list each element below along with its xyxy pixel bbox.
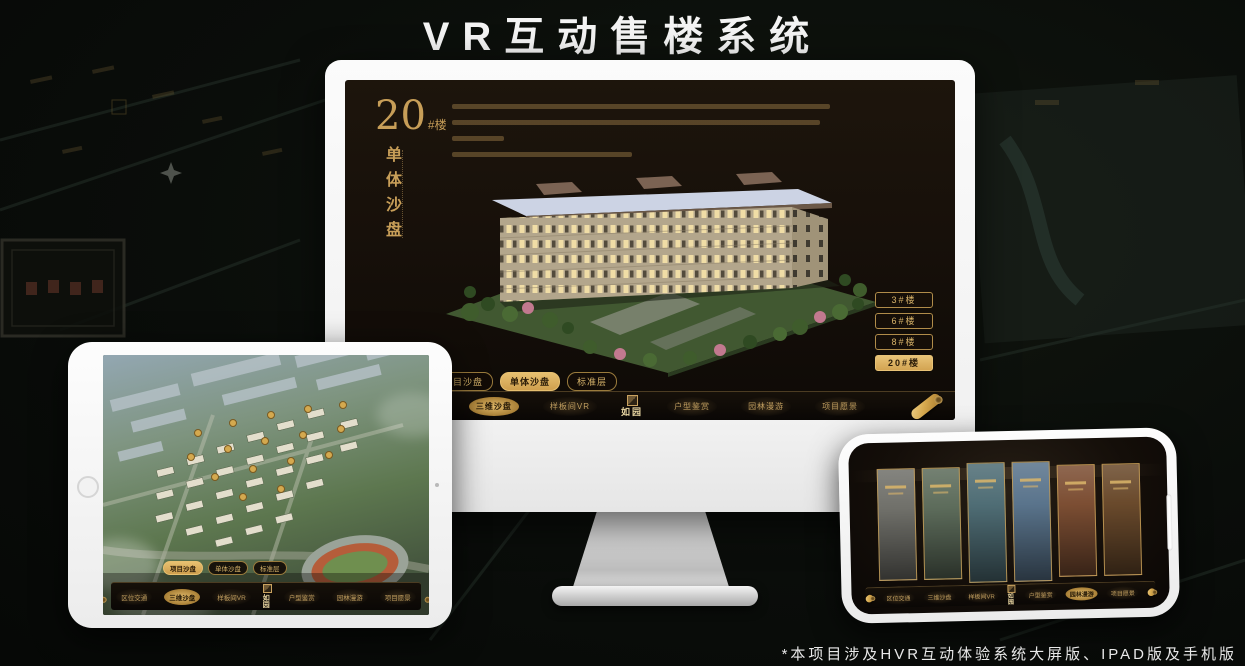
nav-item-sandbox-3d[interactable]: 三维沙盘 (164, 589, 200, 605)
scene-card-6[interactable] (1101, 463, 1142, 576)
scroll-icon[interactable] (864, 593, 874, 603)
seal-icon (263, 584, 272, 593)
bg-plaque (2, 240, 124, 336)
nav-item-model-room-vr[interactable]: 样板间VR (543, 397, 597, 416)
tablet-bottom-nav: 区位交通 三维沙盘 样板间VR 如园 户型鉴赏 园林漫游 项目愿景 (111, 582, 421, 610)
description-line (452, 120, 820, 125)
camera-icon (435, 483, 439, 487)
phone-device: 区位交通 三维沙盘 样板间VR 如园 户型鉴赏 园林漫游 项目愿景 (838, 427, 1180, 624)
description-line (452, 136, 504, 141)
brand-logo-text: 如园 (621, 408, 643, 417)
nav-item-garden-tour[interactable]: 园林漫游 (332, 589, 368, 605)
bg-compass-star-icon (160, 162, 182, 184)
tab-standard-floor[interactable]: 标准层 (567, 372, 617, 391)
block-subtitle: 单体沙盘 (379, 146, 403, 246)
building-button-6[interactable]: 6#楼 (875, 313, 933, 329)
page-title: VR互动售楼系统 (0, 4, 1245, 62)
scene-card-4[interactable] (1011, 461, 1052, 582)
scroll-icon[interactable] (1146, 587, 1156, 597)
nav-item-vision[interactable]: 项目愿景 (815, 397, 865, 416)
seal-icon (1007, 584, 1015, 592)
tablet-sandbox-tabs: 项目沙盘 单体沙盘 标准层 (163, 561, 287, 575)
tab-project-sandbox[interactable]: 项目沙盘 (163, 561, 203, 575)
brand-logo: 如园 (621, 395, 643, 417)
seal-icon (627, 395, 638, 406)
description-line (452, 104, 830, 109)
scroll-icon[interactable] (909, 392, 943, 420)
nav-item-location[interactable]: 区位交通 (116, 589, 152, 605)
description-line (452, 152, 632, 157)
nav-item-floorplans[interactable]: 户型鉴赏 (1025, 587, 1057, 601)
brand-logo-text: 如园 (263, 595, 272, 609)
tab-single-sandbox[interactable]: 单体沙盘 (500, 372, 560, 391)
nav-item-location[interactable]: 区位交通 (882, 591, 914, 605)
nav-item-sandbox-3d[interactable]: 三维沙盘 (923, 590, 955, 604)
subtitle-ornament (402, 150, 403, 238)
phone-speaker-slot (1166, 494, 1172, 550)
block-number: 20 (375, 93, 426, 139)
nav-item-garden-tour[interactable]: 园林漫游 (1066, 587, 1098, 601)
tab-standard-floor[interactable]: 标准层 (253, 561, 287, 575)
scene-card-3[interactable] (966, 462, 1007, 583)
building-selector: 3#楼 6#楼 8#楼 20#楼 (875, 292, 933, 371)
block-unit: #楼 (428, 118, 447, 132)
description-paragraph (452, 104, 830, 168)
tablet-screen: 项目沙盘 单体沙盘 标准层 区位交通 三维沙盘 样板间VR 如园 户型鉴赏 园林… (103, 355, 429, 615)
phone-bottom-nav: 区位交通 三维沙盘 样板间VR 如园 户型鉴赏 园林漫游 项目愿景 (865, 581, 1155, 609)
nav-item-sandbox-3d[interactable]: 三维沙盘 (469, 397, 519, 416)
scene-card-gallery (849, 462, 1170, 585)
nav-item-floorplans[interactable]: 户型鉴赏 (284, 589, 320, 605)
tablet-device: 项目沙盘 单体沙盘 标准层 区位交通 三维沙盘 样板间VR 如园 户型鉴赏 园林… (68, 342, 452, 628)
building-3d-model[interactable] (440, 162, 885, 377)
building-button-8[interactable]: 8#楼 (875, 334, 933, 350)
footnote: *本项目涉及HVR互动体验系统大屏版、IPAD版及手机版 (782, 643, 1237, 664)
scene-card-2[interactable] (921, 467, 962, 580)
tab-single-sandbox[interactable]: 单体沙盘 (208, 561, 248, 575)
sandbox-tabs: 项目沙盘 单体沙盘 标准层 (433, 372, 617, 391)
nav-item-vision[interactable]: 项目愿景 (380, 589, 416, 605)
scene-card-1[interactable] (876, 468, 917, 581)
nav-item-model-room-vr[interactable]: 样板间VR (212, 589, 251, 605)
brand-logo: 如园 (263, 584, 272, 609)
brand-logo: 如园 (1007, 584, 1015, 605)
nav-item-floorplans[interactable]: 户型鉴赏 (667, 397, 717, 416)
block-title: 20#楼 (375, 96, 447, 136)
building-button-20[interactable]: 20#楼 (875, 355, 933, 371)
nav-item-garden-tour[interactable]: 园林漫游 (741, 397, 791, 416)
brand-logo-text: 如园 (1008, 593, 1016, 605)
monitor-stand (572, 510, 730, 590)
page: VR互动售楼系统 20#楼 单体沙盘 (0, 0, 1245, 666)
building-button-3[interactable]: 3#楼 (875, 292, 933, 308)
home-button[interactable] (77, 476, 99, 498)
nav-item-model-room-vr[interactable]: 样板间VR (964, 589, 999, 603)
monitor-base (552, 586, 758, 606)
nav-item-vision[interactable]: 项目愿景 (1107, 586, 1139, 600)
scene-card-5[interactable] (1056, 464, 1097, 577)
bg-aerial-photo (967, 75, 1245, 343)
aerial-masterplan-map[interactable] (103, 355, 429, 615)
phone-screen: 区位交通 三维沙盘 样板间VR 如园 户型鉴赏 园林漫游 项目愿景 (848, 436, 1170, 614)
